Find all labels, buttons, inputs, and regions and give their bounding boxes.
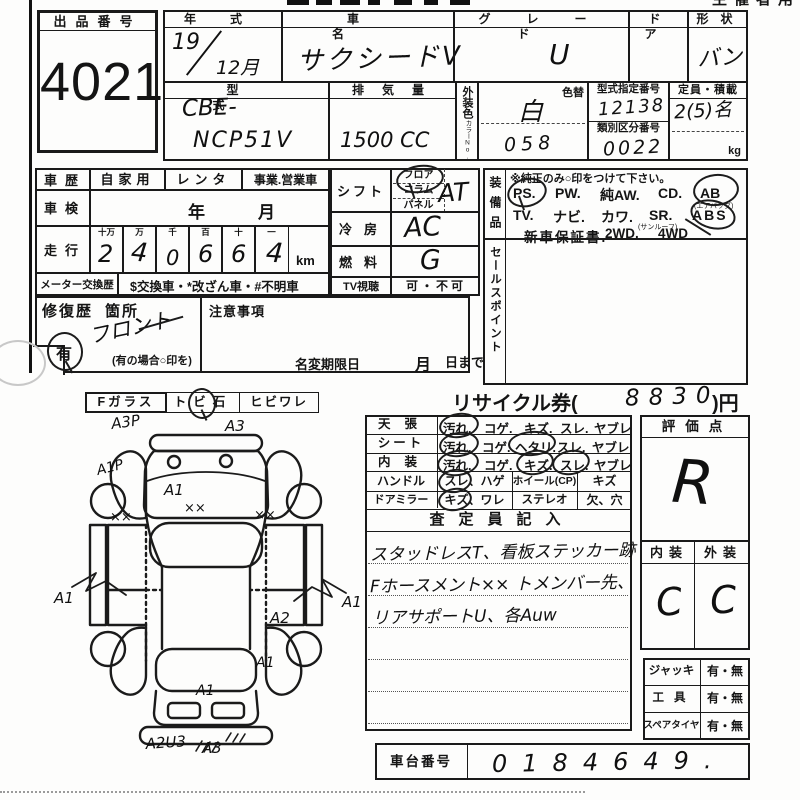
- rename-day-label: 日まで: [445, 352, 484, 371]
- sales-point-box: [483, 238, 748, 385]
- mileage-digit: 0: [166, 246, 179, 270]
- door-header: ドア: [630, 12, 687, 28]
- capacity-divider: [672, 131, 744, 132]
- jack-label: ジャッキ: [643, 658, 700, 685]
- capacity-unit: kg: [728, 145, 741, 157]
- equipment-sr: SR.: [649, 207, 672, 223]
- model-code-value-2: NCP51V: [193, 128, 293, 153]
- exhibit-number-label: 出品番号: [40, 13, 155, 31]
- cond-roof-label: 天張: [365, 415, 437, 434]
- interior-score-label: 内装: [641, 542, 694, 563]
- tv-value: 可・不可: [392, 276, 480, 296]
- fuel-value: G: [419, 245, 441, 277]
- color-code-value: 058: [503, 132, 555, 157]
- equipment-navi: ナビ.: [553, 207, 585, 227]
- digit-header: 千: [156, 226, 189, 238]
- left-margin-rule: [29, 0, 32, 373]
- annotation-a3-bottom: A3: [201, 739, 222, 757]
- chassis-number-value: 0184649.: [492, 746, 727, 778]
- organizer-use-label: 主催者用: [712, 0, 800, 7]
- exterior-score-label: 外装: [695, 542, 748, 563]
- car-name-header: 車名: [283, 12, 453, 28]
- digit-header: 万: [123, 226, 156, 238]
- recycle-suffix: )円: [712, 387, 739, 416]
- fglass-label: Fガラス: [87, 394, 165, 411]
- rename-deadline-label: 名変期限日: [295, 354, 360, 373]
- color-value: 白: [518, 92, 543, 128]
- rename-month-label: 月: [415, 351, 431, 375]
- shift-label: シフト: [330, 168, 392, 213]
- tools-label: 工具: [643, 685, 700, 712]
- evaluation-score: R: [670, 447, 716, 520]
- tail-lamp-left: [168, 703, 200, 718]
- fglass-label-box: Fガラス: [85, 392, 167, 413]
- interior-score: C: [654, 579, 685, 626]
- organizer-use-fragment: 主催者用: [712, 0, 800, 7]
- note-rule: [368, 723, 628, 724]
- meter-value: $交換車・*改ざん車・#不明車: [130, 276, 299, 295]
- class-number-value: 0022: [602, 135, 663, 160]
- shape-value: バン: [696, 38, 743, 73]
- chassis-number-label: 車台番号: [375, 743, 467, 780]
- car-name-value: サクシードV: [296, 35, 463, 78]
- ac-value: AC: [403, 211, 442, 244]
- annotation-a1-left: A1: [53, 589, 74, 607]
- equipment-leather: カワ.: [601, 207, 633, 227]
- digit-header: 十: [222, 226, 255, 238]
- equipment-aw: 純AW.: [600, 185, 640, 205]
- grade-value: U: [549, 38, 570, 71]
- annotation-a1-rear-side: A1: [255, 655, 274, 671]
- digit-header: 十万: [90, 226, 123, 238]
- bumper-hatch-marks: [226, 733, 245, 742]
- hood-outline: [144, 451, 268, 518]
- left-damage-arrow: [72, 573, 126, 595]
- inspector-note-3: リアサポートU、各Auw: [372, 600, 557, 628]
- fuel-label: 燃料: [330, 245, 392, 278]
- cond-interior-label: 内装: [365, 453, 437, 471]
- annotation-a1-right: A1: [341, 593, 362, 611]
- equipment-label: 装備品: [487, 176, 504, 236]
- cond-opt: スレ.: [560, 418, 588, 437]
- annotation-xx-center: ××: [184, 501, 206, 516]
- annotation-xx-left: ××: [110, 510, 132, 525]
- displacement-header: 排気量: [330, 83, 455, 99]
- car-damage-diagram: A3P A3 A1P A1 ×× ×× ×× A1 A1 A2 A1 A1 A2…: [50, 413, 370, 778]
- class-number-header: 類別区分番号: [589, 122, 668, 135]
- annotation-a3-top: A3: [224, 417, 245, 435]
- mileage-digit: 2: [98, 240, 113, 268]
- annotation-a1-tailgate: A1: [195, 683, 214, 699]
- repair-note: (有の場合○印を): [112, 352, 192, 368]
- mileage-digit: 4: [129, 237, 149, 269]
- stereo-label: ステレオ: [512, 491, 577, 509]
- exterior-color-label: 外装色: [457, 86, 477, 119]
- exterior-score: C: [708, 577, 738, 623]
- sales-point-strip-divider: [505, 240, 506, 383]
- caution-label: 注意事項: [209, 301, 265, 320]
- history-label: 車歴: [35, 168, 91, 191]
- evaluation-header: 評価点: [641, 417, 748, 438]
- cond-opt: コゲ.: [484, 418, 512, 437]
- exhibit-number-box: 出品番号 4021: [37, 10, 158, 153]
- equipment-pw: PW.: [555, 185, 581, 201]
- recycle-amount: 8830: [625, 382, 720, 411]
- meter-label: メーター交換歴: [35, 272, 119, 296]
- history-private: 自家用: [89, 168, 166, 191]
- auction-sheet: 主催者用 出品番号 4021 年式 19 12月 車名 サクシードV グレード …: [0, 0, 800, 800]
- wiper-pivot: [168, 456, 180, 468]
- year-header: 年式: [165, 12, 281, 28]
- fglass-crack-label: ヒビワレ: [240, 393, 318, 412]
- annotation-a1-hood: A1: [163, 481, 184, 499]
- annotation-xx-right: ××: [254, 508, 276, 523]
- wiper-pivot: [220, 455, 232, 467]
- tools-value: 有・無: [700, 685, 750, 712]
- grade-header: グレード: [455, 12, 628, 28]
- door-cell: ドア: [628, 10, 689, 83]
- spare-tire-value: 有・無: [700, 712, 750, 740]
- cond-opt: ヤブレ: [592, 437, 630, 456]
- history-rental: レンタ: [164, 168, 243, 191]
- color-no-label: カラーNo.: [462, 120, 472, 161]
- ac-label: 冷房: [330, 211, 392, 247]
- jack-value: 有・無: [700, 658, 750, 685]
- month-value: 12月: [216, 53, 259, 80]
- mileage-digit: 4: [265, 237, 284, 269]
- cond-opt: ヤブレ: [594, 418, 632, 437]
- equipment-cd: CD.: [658, 185, 682, 201]
- front-bumper: [150, 435, 262, 451]
- mirror-label: ドアミラー: [365, 491, 437, 509]
- color-change-label: 色替: [562, 84, 584, 100]
- inspector-header: 査定員記入: [365, 509, 632, 531]
- sales-point-label: セールスポイント: [487, 246, 503, 354]
- inspection-year-label: 年: [188, 198, 205, 223]
- windshield: [150, 523, 262, 567]
- bottom-dotted-rule: [0, 791, 585, 793]
- repair-label: 修復歴: [42, 300, 93, 321]
- mileage-digit: 6: [198, 240, 213, 268]
- shape-header: 形状: [689, 12, 746, 28]
- tail-lamp-right: [212, 703, 244, 718]
- spare-tire-label: スペアタイヤ: [643, 712, 700, 740]
- cond-seat-label: シート: [365, 434, 437, 453]
- year-value: 19: [172, 30, 200, 55]
- inspector-note-1: スタッドレスT、看板ステッカー跡: [370, 536, 636, 566]
- annotation-a3p: A3P: [109, 413, 142, 433]
- recycle-prefix: リサイクル券(: [452, 387, 578, 416]
- cond-opt: コゲ.: [482, 437, 510, 456]
- stereo-opt: 欠、穴: [577, 491, 632, 509]
- exhibit-number: 4021: [40, 51, 155, 113]
- digit-header: 百: [189, 226, 222, 238]
- annotation-a2-right: A2: [269, 609, 290, 627]
- left-side-panels: [90, 451, 161, 694]
- chassis-divider: [467, 744, 468, 778]
- inspection-label: 車検: [35, 189, 91, 227]
- wheel-opt: キズ: [577, 471, 632, 491]
- digit-header: 一: [255, 226, 288, 238]
- inspector-note-2: Fホースメント×× トメンバー先、: [370, 568, 634, 598]
- annotation-a1p: A1P: [94, 457, 126, 479]
- model-code-value-1: CBE-: [182, 94, 238, 122]
- row-divider: [366, 531, 631, 532]
- tv-label: TV視聴: [330, 276, 392, 296]
- mileage-digit: 6: [231, 240, 246, 268]
- mileage-unit: km: [296, 253, 315, 268]
- type-number-header: 型式指定番号: [589, 83, 668, 96]
- scan-artifact-arc: [0, 340, 46, 386]
- handle-label: ハンドル: [365, 471, 437, 491]
- evaluation-sub-line: [641, 563, 748, 564]
- inspection-month-label: 月: [258, 198, 275, 223]
- exterior-color-strip: 外装色 カラーNo.: [455, 81, 479, 161]
- note-rule: [368, 691, 628, 692]
- annotation-a2u3: A2U3: [144, 732, 186, 753]
- fglass-crack-box: ヒビワレ: [239, 392, 319, 413]
- note-rule: [368, 659, 628, 660]
- cowl-line: [147, 472, 265, 481]
- capacity-value: 2(5)名: [673, 95, 732, 125]
- repair-caution-divider: [200, 297, 202, 372]
- displacement-value: 1500 CC: [340, 128, 429, 152]
- mileage-label: 走行: [35, 225, 91, 274]
- history-business: 事業.営業車: [241, 168, 330, 191]
- grade-cell: グレード: [453, 10, 630, 83]
- equipment-strip-divider: [505, 170, 506, 238]
